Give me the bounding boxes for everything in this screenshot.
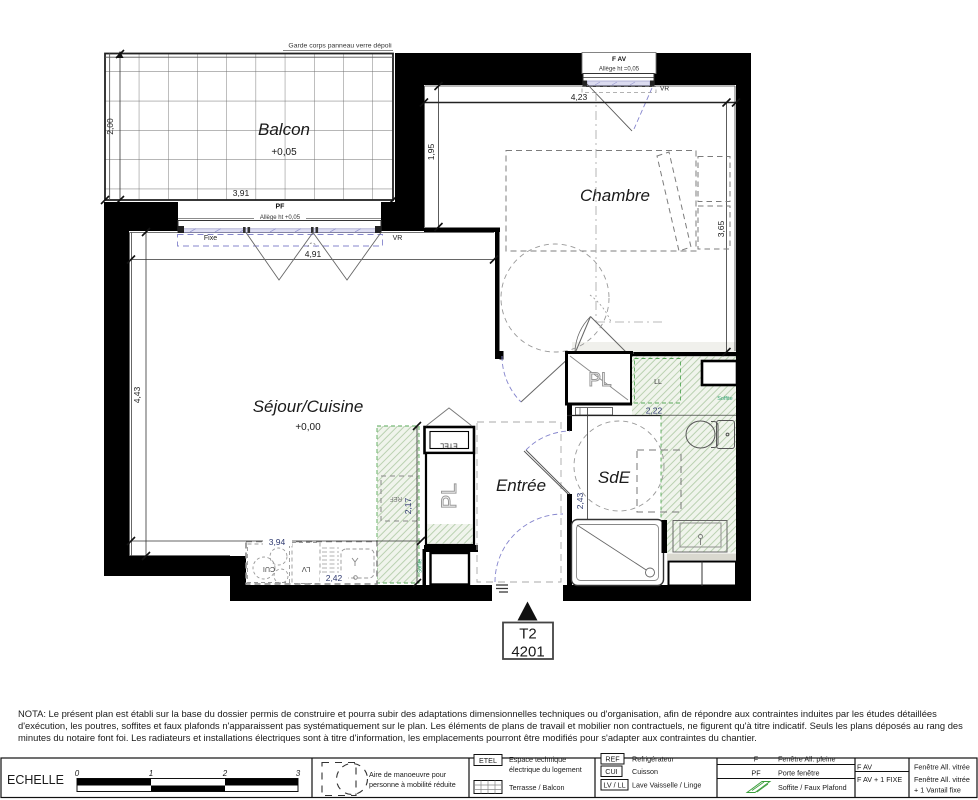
svg-text:+0,00: +0,00 (295, 422, 321, 433)
svg-text:Entrée: Entrée (496, 476, 546, 495)
svg-text:Porte fenêtre: Porte fenêtre (778, 769, 820, 778)
svg-text:ECHELLE: ECHELLE (7, 773, 64, 787)
svg-text:NOTA: Le présent plan est étab: NOTA: Le présent plan est établi sur la … (18, 708, 937, 719)
svg-text:Espace technique: Espace technique (509, 755, 566, 764)
svg-text:VR: VR (660, 86, 669, 93)
svg-text:PF: PF (276, 204, 286, 211)
svg-text:3,94: 3,94 (269, 537, 286, 547)
svg-text:ETEL: ETEL (479, 756, 497, 765)
svg-text:Fenêtre All. pleine: Fenêtre All. pleine (778, 755, 836, 764)
svg-text:F AV: F AV (857, 763, 872, 772)
svg-text:2,42: 2,42 (326, 573, 343, 583)
svg-text:Lave Vaisselle / Linge: Lave Vaisselle / Linge (632, 781, 701, 790)
svg-text:Soffite: Soffite (717, 396, 733, 402)
svg-text:REF: REF (605, 755, 620, 764)
svg-text:2: 2 (222, 769, 228, 778)
svg-text:CUI: CUI (605, 767, 617, 776)
svg-text:d'exécution, les poutres, soff: d'exécution, les poutres, soffites et fa… (18, 720, 963, 731)
svg-text:+ 1 Vantail fixe: + 1 Vantail fixe (914, 786, 961, 795)
svg-text:1: 1 (149, 769, 153, 778)
svg-text:Fenêtre All. vitrée: Fenêtre All. vitrée (914, 763, 970, 772)
svg-text:personne à mobilité réduite: personne à mobilité réduite (369, 780, 456, 789)
svg-text:ETEL: ETEL (440, 442, 458, 449)
svg-text:1,95: 1,95 (426, 143, 436, 160)
svg-text:Fenêtre All. vitrée: Fenêtre All. vitrée (914, 775, 970, 784)
svg-text:SdE: SdE (598, 468, 631, 487)
svg-text:électrique du logement: électrique du logement (509, 765, 582, 774)
svg-text:Séjour/Cuisine: Séjour/Cuisine (253, 397, 364, 416)
svg-text:+0,05: +0,05 (271, 147, 297, 158)
svg-text:Fixe: Fixe (204, 235, 217, 242)
svg-text:VR: VR (393, 235, 403, 242)
svg-text:F: F (754, 755, 759, 764)
svg-text:REF: REF (390, 495, 402, 501)
svg-text:2,00: 2,00 (105, 118, 115, 135)
svg-text:Aire de manoeuvre pour: Aire de manoeuvre pour (369, 770, 447, 779)
svg-text:PL: PL (438, 483, 461, 509)
svg-text:PF: PF (751, 769, 761, 778)
svg-text:4201: 4201 (511, 644, 544, 661)
svg-text:Allège ht =0,05: Allège ht =0,05 (599, 67, 640, 73)
svg-text:Soffite: Soffite (418, 559, 424, 573)
svg-text:3,91: 3,91 (233, 188, 250, 198)
svg-text:F AV + 1 FIXE: F AV + 1 FIXE (857, 775, 902, 784)
svg-text:PL: PL (588, 370, 611, 391)
svg-text:Balcon: Balcon (258, 120, 310, 139)
svg-text:2,17: 2,17 (403, 497, 413, 514)
svg-text:LV: LV (302, 565, 311, 574)
svg-text:CUI: CUI (263, 565, 275, 572)
svg-text:2,22: 2,22 (646, 406, 663, 416)
svg-text:T2: T2 (519, 626, 537, 643)
svg-text:F AV: F AV (612, 56, 627, 63)
svg-text:Terrasse / Balcon: Terrasse / Balcon (509, 783, 565, 792)
svg-text:Soffite / Faux Plafond: Soffite / Faux Plafond (778, 783, 847, 792)
svg-text:minutes du notaire font foi. L: minutes du notaire font foi. Les radiate… (18, 732, 757, 743)
svg-text:LL: LL (654, 379, 662, 386)
svg-text:2,43: 2,43 (575, 492, 585, 509)
svg-text:4,23: 4,23 (571, 92, 588, 102)
svg-text:Cuisson: Cuisson (632, 767, 658, 776)
svg-text:4,91: 4,91 (305, 249, 322, 259)
svg-text:4,43: 4,43 (132, 386, 142, 403)
svg-text:Refrigérateur: Refrigérateur (632, 755, 675, 764)
svg-text:0: 0 (75, 769, 80, 778)
svg-text:3: 3 (296, 769, 301, 778)
svg-text:Chambre: Chambre (580, 186, 650, 205)
svg-text:LV / LL: LV / LL (603, 781, 625, 790)
svg-text:3,65: 3,65 (716, 220, 726, 237)
svg-text:Garde corps panneau verre dépo: Garde corps panneau verre dépoli (288, 43, 392, 50)
